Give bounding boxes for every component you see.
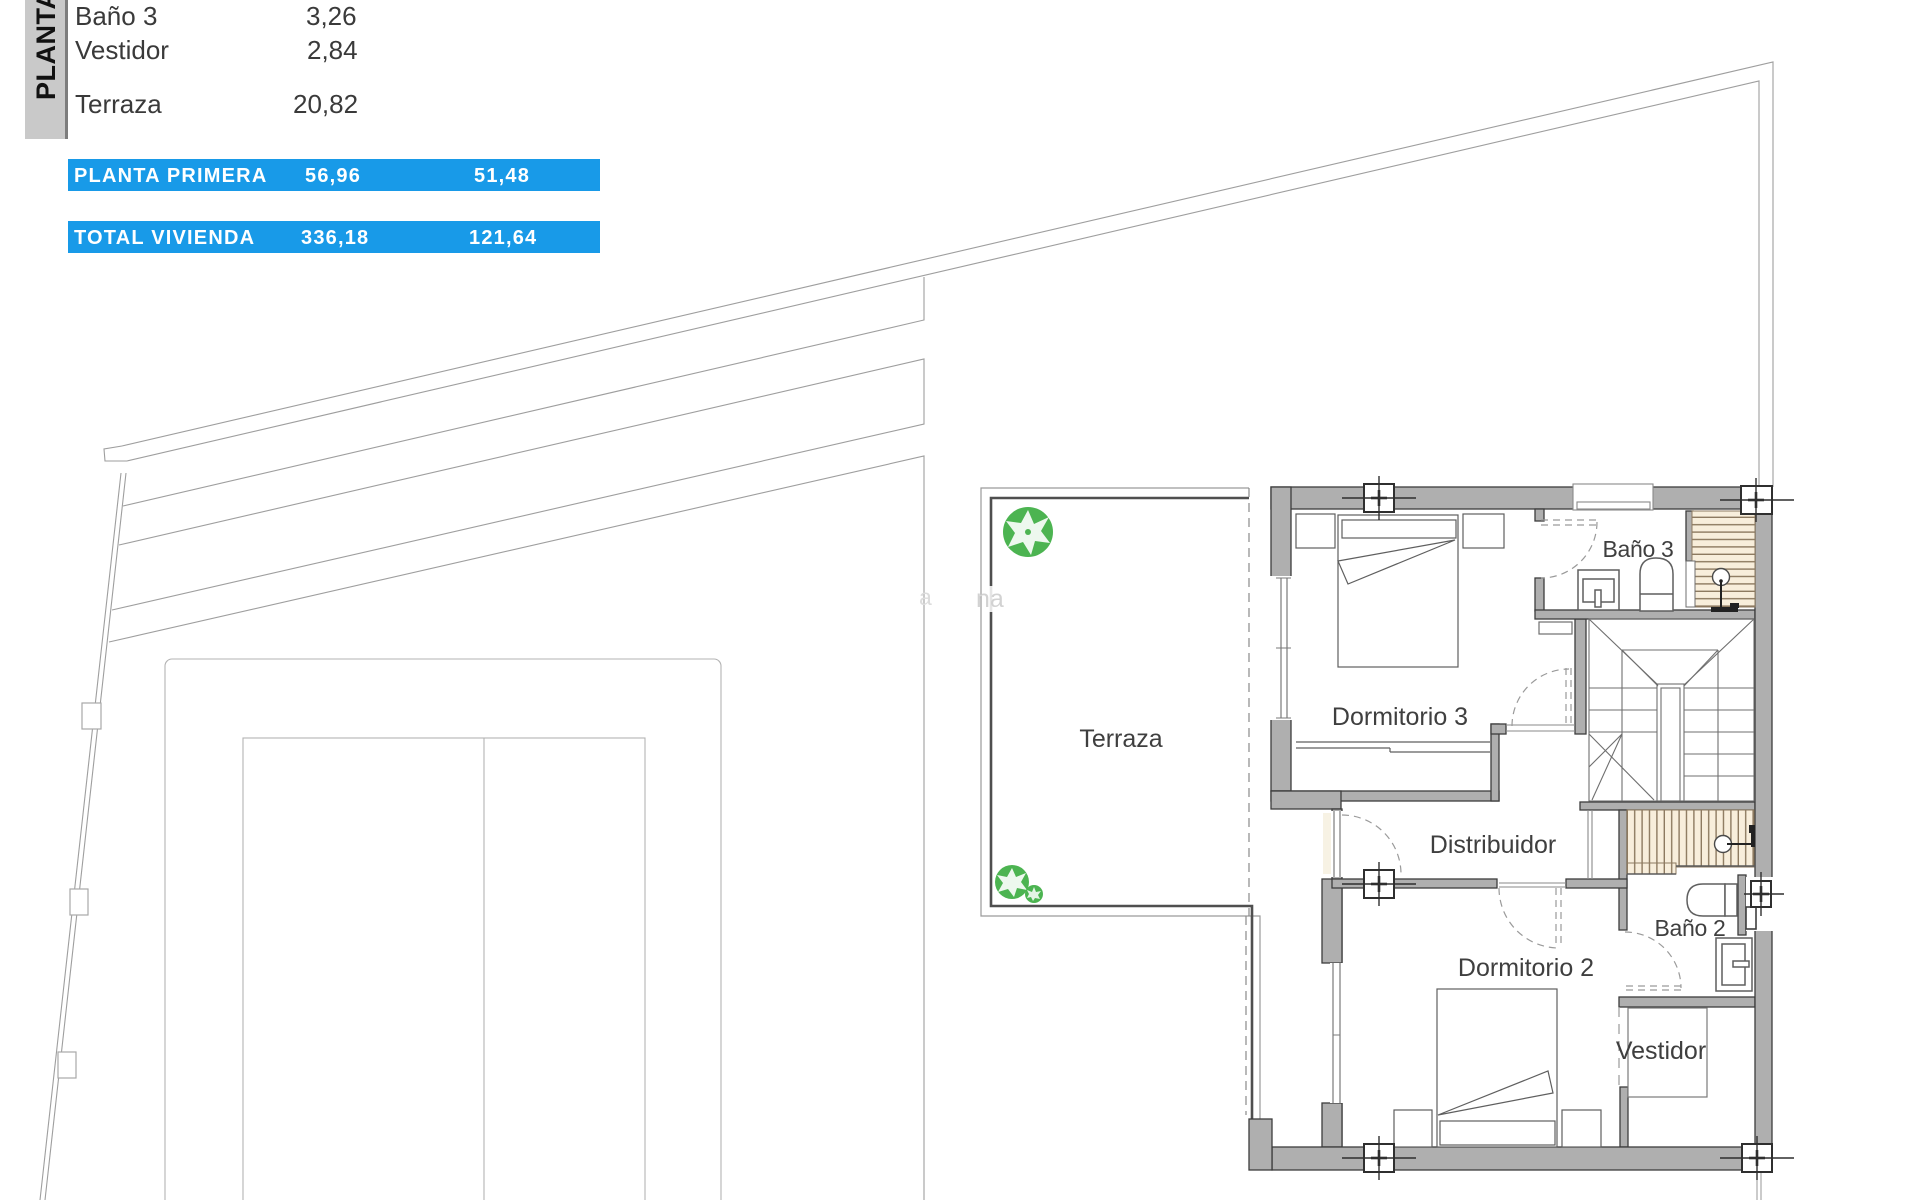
svg-text:Distribuidor: Distribuidor: [1430, 831, 1556, 859]
svg-text:Vestidor: Vestidor: [1616, 1037, 1706, 1065]
svg-text:Dormitorio 2: Dormitorio 2: [1458, 954, 1594, 982]
svg-text:na: na: [976, 585, 1004, 613]
svg-text:Dormitorio 3: Dormitorio 3: [1332, 703, 1468, 731]
svg-text:a: a: [919, 584, 932, 610]
svg-text:Terraza: Terraza: [1079, 725, 1162, 753]
svg-text:Baño 2: Baño 2: [1654, 915, 1725, 941]
svg-text:Baño 3: Baño 3: [1602, 536, 1673, 562]
